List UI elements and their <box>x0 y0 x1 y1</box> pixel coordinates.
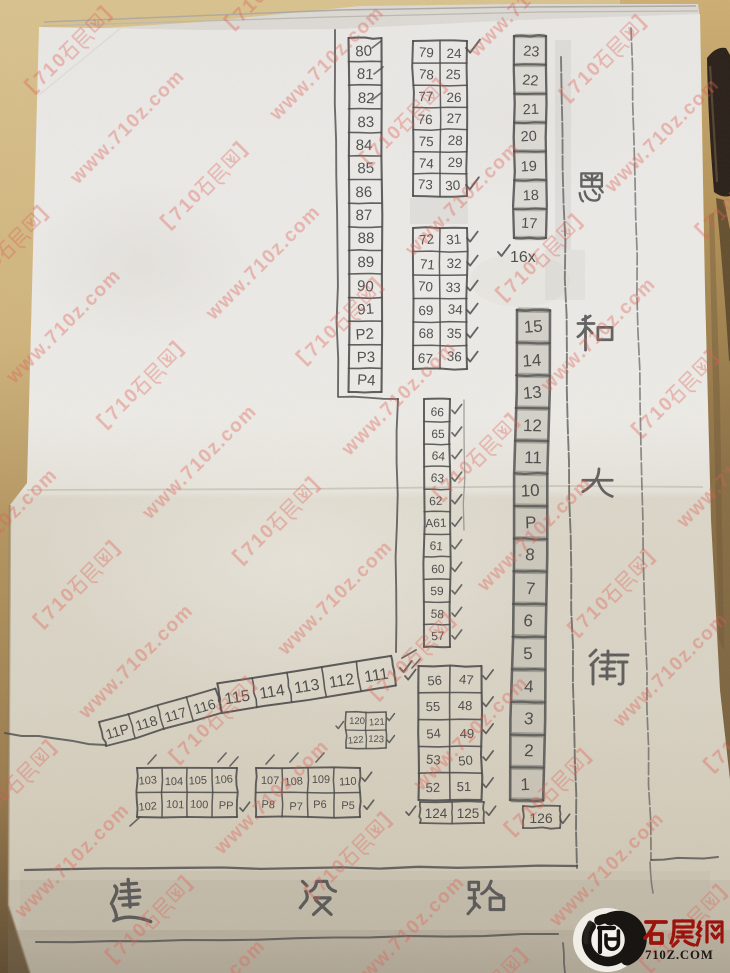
svg-text:710Z.COM: 710Z.COM <box>645 948 714 962</box>
